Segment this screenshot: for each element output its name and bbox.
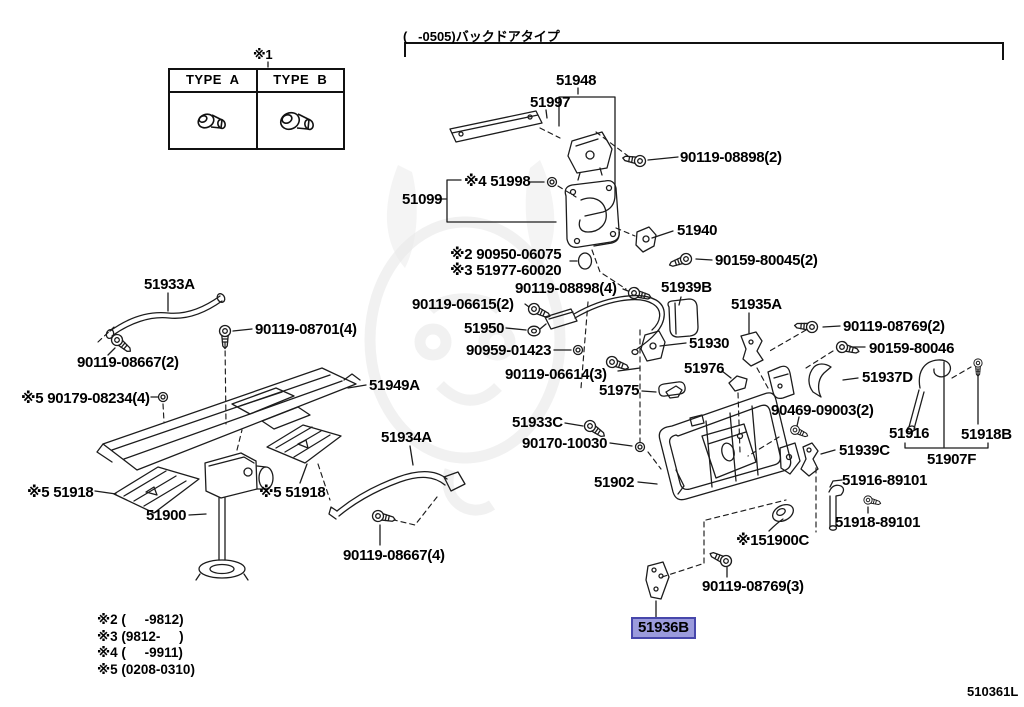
part-label-90119-08701-4: 90119-08701(4) [255,322,357,337]
part-label-90119-08667-4: 90119-08667(4) [343,548,445,563]
part-label-90119-06614-3: 90119-06614(3) [505,367,607,382]
part-label-90179-08234-4: ※5 90179-08234(4) [21,391,150,406]
part-label-51939b: 51939B [661,280,712,295]
part-label-90959-01423: 90959-01423 [466,343,551,358]
part-label-51935a: 51935A [731,297,782,312]
part-label-90159-80045-2: 90159-80045(2) [715,253,818,268]
footnotes: ※2 ( -9812) ※3 (9812- ) ※4 ( -9911) ※5 (… [97,612,195,678]
footnote-4: ※4 ( -9911) [97,645,195,662]
part-drawing-pipe-51933a [105,292,226,339]
part-label-90119-08769-2: 90119-08769(2) [843,319,945,334]
part-label-51934a: 51934A [381,430,432,445]
part-label-90119-08667-2: 90119-08667(2) [77,355,179,370]
type-a-cell [170,93,256,148]
selected-part-label-51936b[interactable]: 51936B [631,617,696,639]
part-label-90469-09003-2: 90469-09003(2) [771,403,874,418]
part-label-51977-60020: ※3 51977-60020 [450,263,561,278]
part-drawing-bracket-51936b [646,562,669,599]
part-label-51949a: 51949A [369,378,420,393]
part-label-51933a: 51933A [144,277,195,292]
part-label-51997: 51997 [530,95,570,110]
part-label-90950-06075: ※2 90950-06075 [450,247,561,262]
part-label-51998: ※4 51998 [464,174,530,189]
part-label-51939c: 51939C [839,443,890,458]
part-label-51918-right: ※5 51918 [259,485,325,500]
part-label-51907f: 51907F [927,452,976,467]
part-drawing-cover-51918-right [267,425,341,463]
parts-diagram-page: TYPE A TYPE B [0,0,1024,707]
footnote-5: ※5 (0208-0310) [97,662,195,679]
part-label-51937d: 51937D [862,370,913,385]
part-label-51918-89101: 51918-89101 [835,515,920,530]
part-label-51975: 51975 [599,383,639,398]
footnote-3: ※3 (9812- ) [97,629,195,646]
backdoor-variant-note: ( -0505)バックドアタイプ [403,26,560,45]
part-drawing-frame-51902 [659,366,800,499]
part-drawing-jack-51900 [196,453,273,580]
part-label-51933c: 51933C [512,415,563,430]
part-drawing-torsion-bar-51934a [329,472,465,519]
part-label-51916-89101: 51916-89101 [842,473,927,488]
fastener-type-table: TYPE A TYPE B [168,68,345,150]
part-label-51976: 51976 [684,361,724,376]
part-label-90159-80046: 90159-80046 [869,341,954,356]
part-label-90119-08769-3: 90119-08769(3) [702,579,804,594]
part-label-51918-left: ※5 51918 [27,485,93,500]
type-table-note: ※1 [253,48,272,61]
type-a-bolt-icon [190,104,236,138]
part-label-51930: 51930 [689,336,729,351]
part-label-51940: 51940 [677,223,717,238]
part-label-51916: 51916 [889,426,929,441]
type-b-header: TYPE B [256,70,344,91]
diagram-code: 510361L [967,684,1018,699]
part-label-51900: 51900 [146,508,186,523]
part-label-90119-08898-4: 90119-08898(4) [515,281,617,296]
part-label-51950: 51950 [464,321,504,336]
part-label-51902: 51902 [594,475,634,490]
type-a-header: TYPE A [170,70,256,91]
type-b-bolt-icon [275,103,325,139]
part-label-90119-08898-2: 90119-08898(2) [680,150,782,165]
part-label-90170-10030: 90170-10030 [522,436,607,451]
part-label-51900c: ※151900C [736,533,809,548]
part-drawing-crossmember-51949a [97,368,360,470]
part-label-51948: 51948 [556,73,596,88]
type-b-cell [256,93,344,148]
backdoor-section-bracket [405,43,1003,60]
footnote-2: ※2 ( -9812) [97,612,195,629]
part-label-51099: 51099 [402,192,442,207]
part-label-51918b: 51918B [961,427,1012,442]
part-label-90119-06615-2: 90119-06615(2) [412,297,514,312]
